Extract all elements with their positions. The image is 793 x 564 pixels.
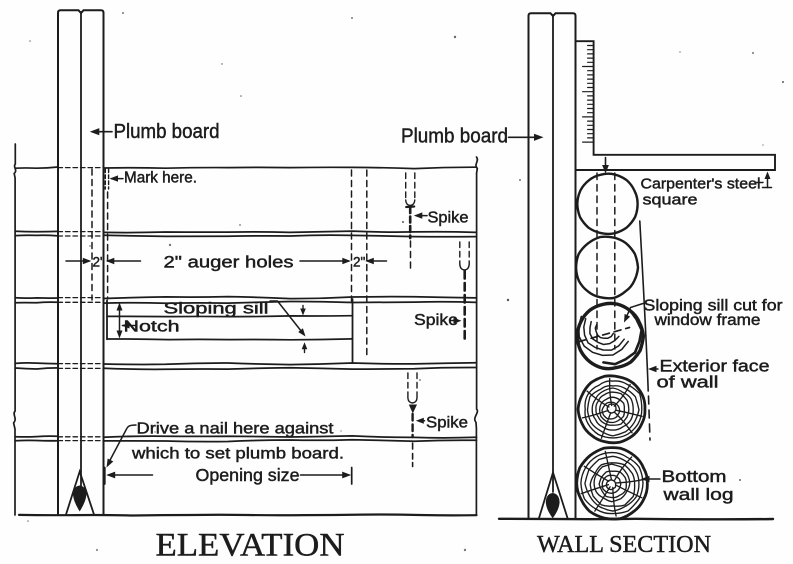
svg-text:WALL SECTION: WALL SECTION bbox=[537, 531, 711, 558]
svg-text:Plumb board: Plumb board bbox=[114, 120, 220, 143]
svg-text:Carpenter's steel: Carpenter's steel bbox=[641, 176, 761, 193]
svg-text:Spike: Spike bbox=[426, 415, 468, 432]
svg-text:Drive a nail here against: Drive a nail here against bbox=[137, 421, 335, 438]
svg-text:Plumb board: Plumb board bbox=[401, 125, 508, 148]
svg-text:2": 2" bbox=[93, 255, 106, 270]
svg-text:Spike: Spike bbox=[428, 210, 469, 227]
svg-text:wall log: wall log bbox=[662, 485, 733, 504]
svg-text:Opening size: Opening size bbox=[196, 465, 300, 485]
svg-text:ELEVATION: ELEVATION bbox=[156, 528, 345, 564]
svg-text:Bottom: Bottom bbox=[662, 467, 727, 486]
svg-text:Sloping sill: Sloping sill bbox=[164, 301, 269, 318]
svg-text:2" auger holes: 2" auger holes bbox=[164, 254, 294, 272]
svg-text:Notch: Notch bbox=[124, 319, 180, 336]
svg-text:Spike: Spike bbox=[414, 312, 458, 329]
svg-text:2": 2" bbox=[353, 255, 366, 270]
svg-text:square: square bbox=[643, 192, 698, 209]
svg-text:of wall: of wall bbox=[657, 374, 719, 392]
svg-text:which to set plumb board.: which to set plumb board. bbox=[131, 446, 344, 463]
svg-text:window frame: window frame bbox=[653, 312, 760, 329]
svg-text:Mark here.: Mark here. bbox=[124, 170, 197, 187]
